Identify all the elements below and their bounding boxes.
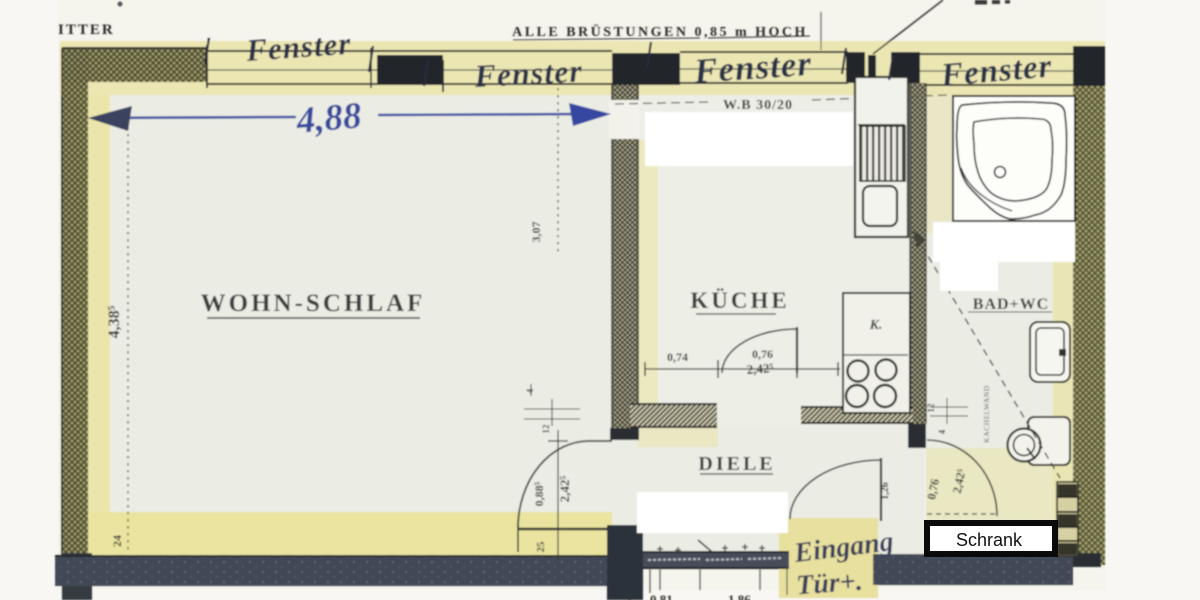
svg-text:2: 2 <box>626 592 633 600</box>
svg-text:Fenster: Fenster <box>472 52 583 94</box>
svg-text:0,81: 0,81 <box>650 592 673 600</box>
svg-text:Schrank: Schrank <box>956 530 1023 550</box>
svg-text:12: 12 <box>541 424 551 434</box>
svg-text:DIELE: DIELE <box>698 453 775 475</box>
svg-text:0,76: 0,76 <box>752 347 773 361</box>
svg-text:KÜCHE: KÜCHE <box>690 288 789 313</box>
svg-text:4: 4 <box>525 388 535 393</box>
svg-text:BAD+WC: BAD+WC <box>973 296 1049 313</box>
svg-text:4: 4 <box>937 429 947 434</box>
svg-text:4,88: 4,88 <box>294 95 363 142</box>
svg-text:1,26: 1,26 <box>880 482 891 500</box>
svg-text:Fenster: Fenster <box>244 26 352 68</box>
svg-text:KACHELWAND: KACHELWAND <box>982 385 991 442</box>
svg-text:ALLE BRÜSTUNGEN 0,85 m HOCH: ALLE BRÜSTUNGEN 0,85 m HOCH <box>512 23 808 40</box>
svg-text:K.: K. <box>869 318 883 333</box>
svg-text:3,07: 3,07 <box>529 222 543 243</box>
svg-text:4,38⁵: 4,38⁵ <box>106 305 123 338</box>
svg-text:Tür+.: Tür+. <box>795 566 864 600</box>
svg-text:24: 24 <box>110 535 124 547</box>
svg-text:2,42⁵: 2,42⁵ <box>557 476 572 503</box>
svg-text:ITTER: ITTER <box>58 22 115 38</box>
svg-text:25: 25 <box>535 541 547 553</box>
svg-text:Fenster: Fenster <box>692 44 813 91</box>
svg-text:WOHN-SCHLAF: WOHN-SCHLAF <box>201 290 426 317</box>
svg-text:0,74: 0,74 <box>667 350 688 364</box>
svg-text:2,42⁵: 2,42⁵ <box>746 360 774 377</box>
svg-text:W.B 30/20: W.B 30/20 <box>723 98 793 113</box>
svg-text:0,88⁵: 0,88⁵ <box>532 481 546 506</box>
svg-text:12: 12 <box>926 403 936 413</box>
svg-text:1,86: 1,86 <box>728 592 751 600</box>
